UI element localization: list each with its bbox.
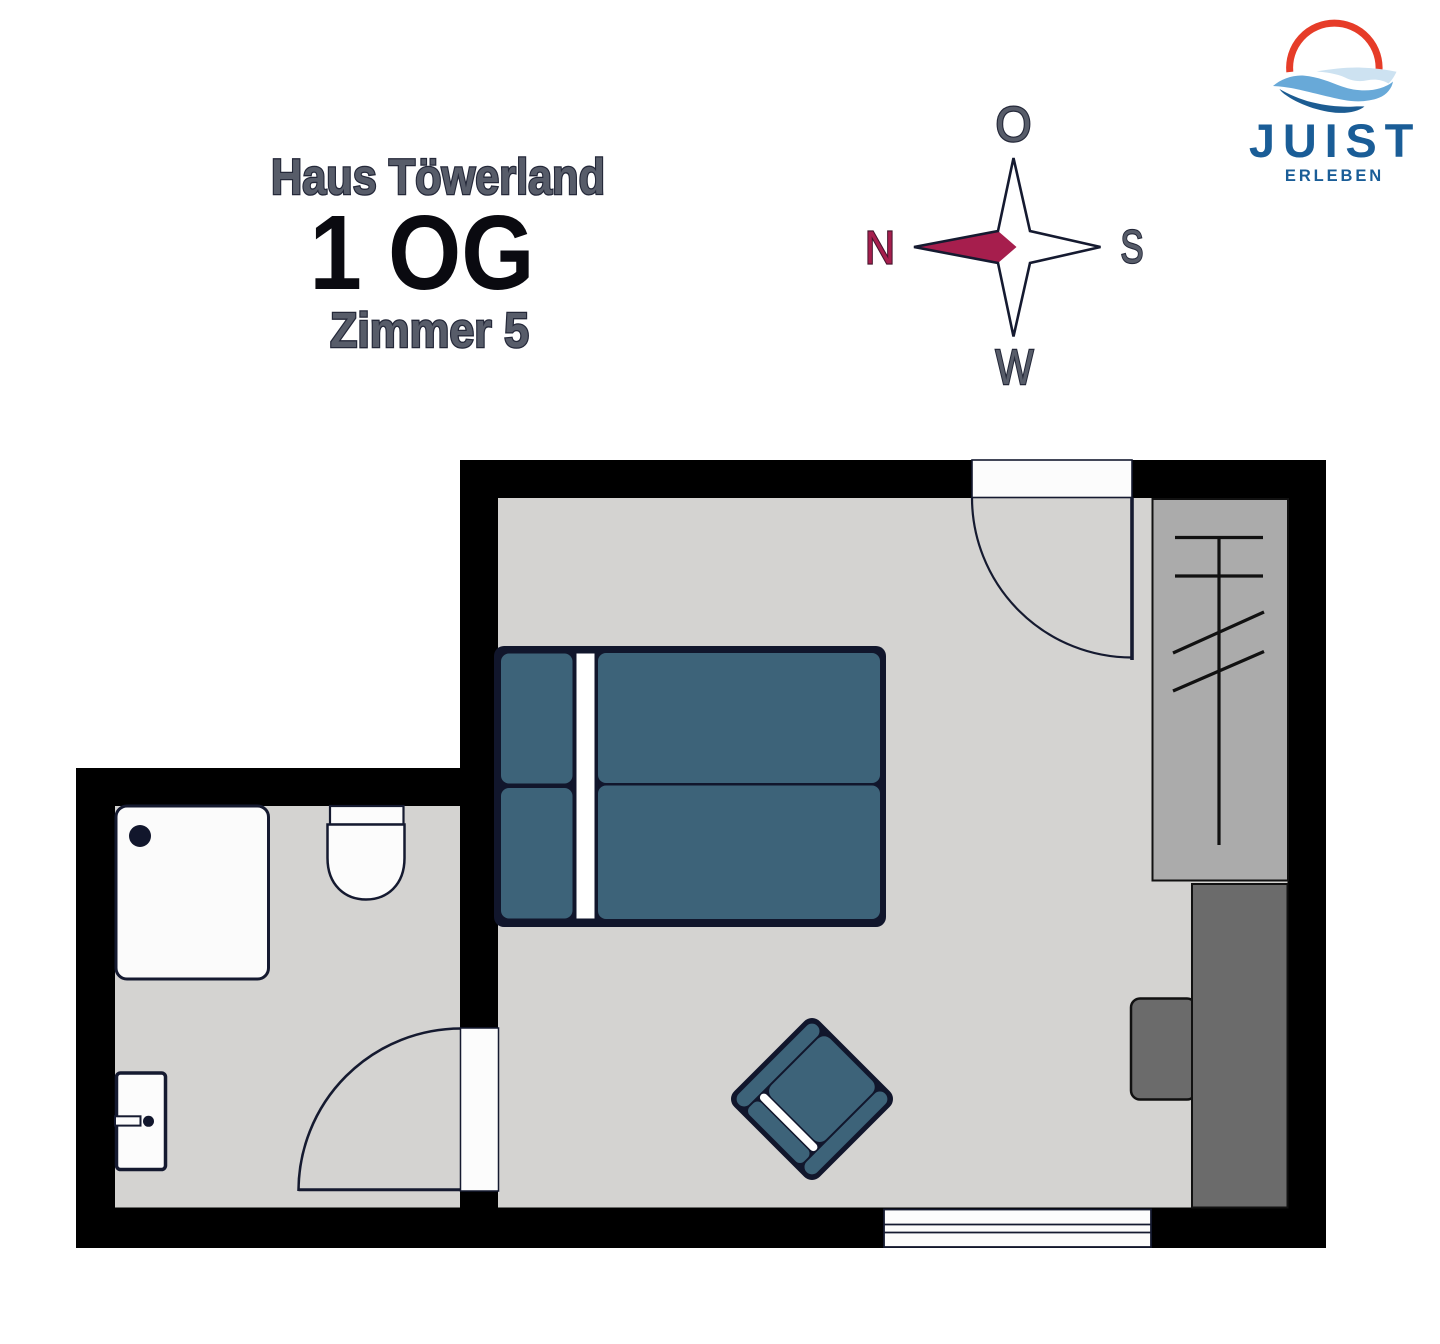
svg-text:W: W — [996, 341, 1035, 395]
svg-text:N: N — [865, 222, 895, 274]
svg-text:O: O — [996, 98, 1032, 152]
svg-text:JUIST: JUIST — [1249, 114, 1421, 167]
svg-text:1 OG: 1 OG — [310, 194, 535, 312]
svg-text:Zimmer 5: Zimmer 5 — [330, 304, 529, 358]
svg-text:ERLEBEN: ERLEBEN — [1285, 167, 1384, 185]
svg-text:S: S — [1121, 221, 1144, 273]
